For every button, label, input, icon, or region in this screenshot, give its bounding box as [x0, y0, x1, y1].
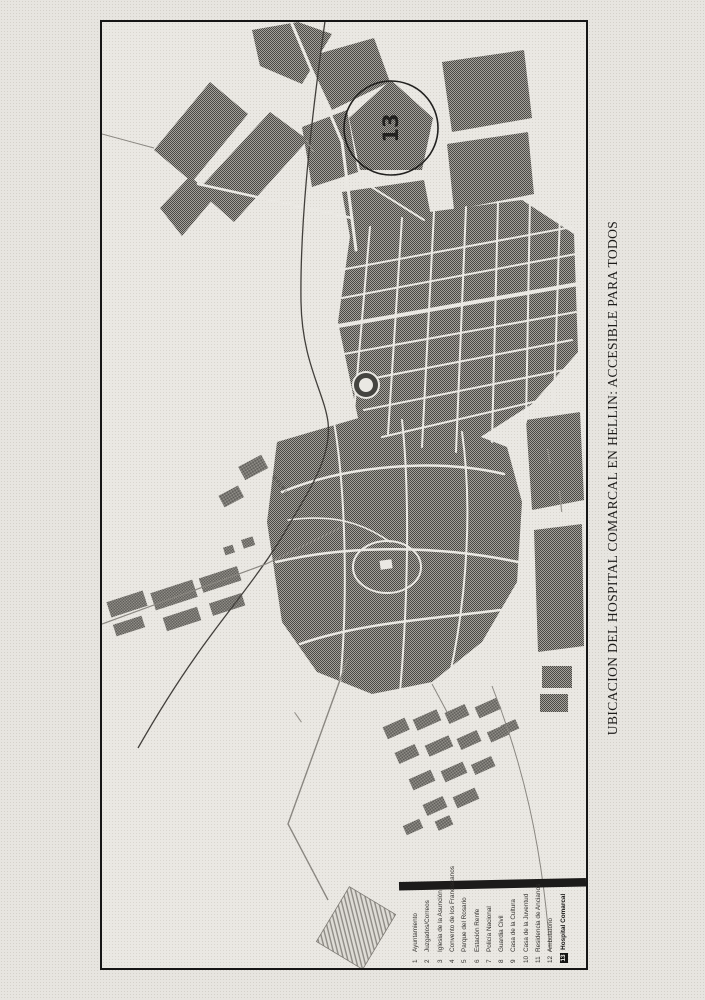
- old-town-plaza: [380, 559, 393, 570]
- city-blocks: [106, 22, 584, 835]
- scanned-page: MADRID 13: [0, 0, 705, 1000]
- map-frame: MADRID 13: [100, 20, 588, 970]
- city-map: MADRID 13: [102, 22, 586, 968]
- cemetery-block: [316, 887, 395, 968]
- bullring-icon: [352, 371, 380, 399]
- hospital-marker-number: 13: [379, 113, 403, 142]
- page-title: UBICACION DEL HOSPITAL COMARCAL EN HELLI…: [605, 221, 621, 735]
- legend-divider-bar: [399, 878, 586, 890]
